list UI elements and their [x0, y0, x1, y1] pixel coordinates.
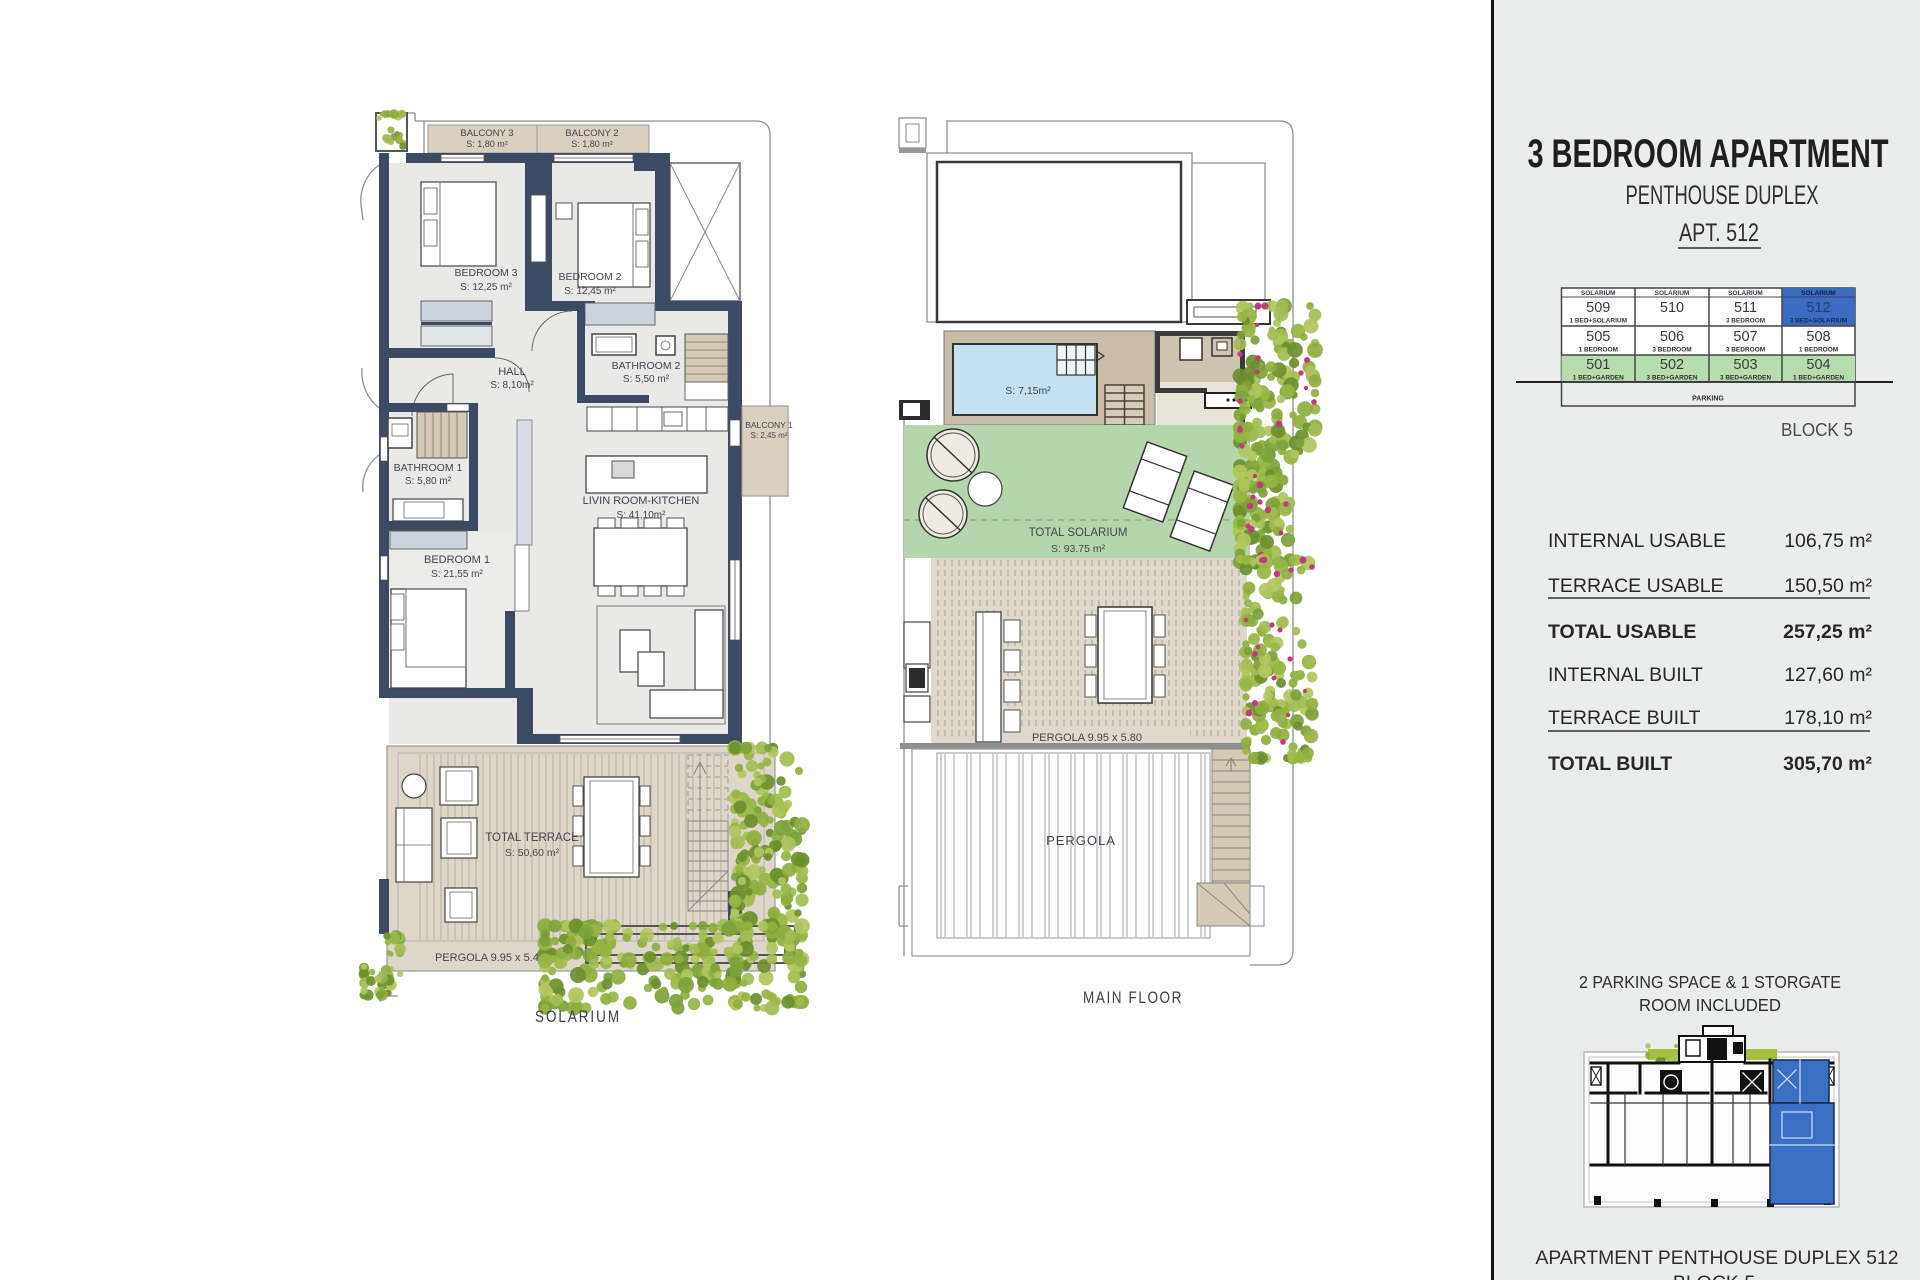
svg-text:3 BED+GARDEN: 3 BED+GARDEN [1646, 375, 1697, 382]
svg-text:PENTHOUSE DUPLEX: PENTHOUSE DUPLEX [1626, 180, 1819, 210]
svg-text:BEDROOM 3: BEDROOM 3 [454, 267, 517, 279]
svg-text:BLOCK 5: BLOCK 5 [1781, 420, 1853, 440]
svg-text:501: 501 [1586, 357, 1610, 373]
svg-text:503: 503 [1733, 357, 1757, 373]
svg-text:3 BEDROOM APARTMENT: 3 BEDROOM APARTMENT [1528, 132, 1889, 176]
svg-text:S: 5,50 m²: S: 5,50 m² [623, 374, 670, 385]
svg-text:INTERNAL USABLE: INTERNAL USABLE [1548, 530, 1726, 552]
svg-text:502: 502 [1660, 357, 1684, 373]
svg-text:3 BED+GARDEN: 3 BED+GARDEN [1720, 375, 1771, 382]
svg-text:S: 2,45 m²: S: 2,45 m² [751, 431, 788, 440]
svg-text:SOLARIUM: SOLARIUM [1728, 290, 1763, 297]
svg-text:TOTAL USABLE: TOTAL USABLE [1548, 621, 1696, 643]
svg-text:1 BED+GARDEN: 1 BED+GARDEN [1573, 375, 1624, 382]
svg-text:3 BEDROOM: 3 BEDROOM [1726, 318, 1765, 325]
svg-text:1 BEDROOM: 1 BEDROOM [1579, 347, 1618, 354]
svg-text:S: 1,80 m²: S: 1,80 m² [466, 139, 508, 149]
svg-text:SOLARIUM: SOLARIUM [1581, 290, 1616, 297]
svg-text:512: 512 [1806, 300, 1830, 316]
svg-text:HALL: HALL [498, 366, 526, 378]
svg-text:2 PARKING SPACE & 1 STORGATE: 2 PARKING SPACE & 1 STORGATE [1579, 972, 1841, 992]
svg-text:PERGOLA: PERGOLA [1046, 833, 1116, 848]
svg-text:S: 8,10m²: S: 8,10m² [490, 380, 534, 391]
svg-text:PERGOLA 9.95 x 5.80: PERGOLA 9.95 x 5.80 [1032, 732, 1142, 744]
svg-text:1 BEDROOM: 1 BEDROOM [1799, 347, 1838, 354]
svg-text:PERGOLA 9.95 x 5.45: PERGOLA 9.95 x 5.45 [435, 952, 545, 964]
svg-text:508: 508 [1806, 329, 1830, 345]
svg-text:SOLARIUM: SOLARIUM [535, 1007, 621, 1026]
svg-text:127,60 m²: 127,60 m² [1784, 664, 1872, 686]
svg-text:BALCONY 3: BALCONY 3 [460, 128, 513, 139]
svg-text:1 BED+GARDEN: 1 BED+GARDEN [1793, 375, 1844, 382]
svg-text:SOLARIUM: SOLARIUM [1655, 290, 1690, 297]
svg-text:106,75 m²: 106,75 m² [1784, 530, 1872, 552]
svg-text:BATHROOM 2: BATHROOM 2 [612, 360, 681, 372]
svg-text:S: 12,25 m²: S: 12,25 m² [460, 282, 512, 293]
svg-text:TOTAL BUILT: TOTAL BUILT [1548, 753, 1672, 775]
svg-text:BATHROOM 1: BATHROOM 1 [394, 462, 463, 474]
svg-text:178,10 m²: 178,10 m² [1784, 707, 1872, 729]
svg-text:305,70 m²: 305,70 m² [1783, 753, 1872, 775]
svg-text:MAIN FLOOR: MAIN FLOOR [1083, 988, 1183, 1007]
svg-text:507: 507 [1733, 329, 1757, 345]
svg-text:506: 506 [1660, 329, 1684, 345]
svg-text:S: 50,60 m²: S: 50,60 m² [505, 847, 560, 859]
svg-text:BLOCK 5: BLOCK 5 [1673, 1272, 1756, 1280]
svg-text:150,50 m²: 150,50 m² [1784, 575, 1872, 597]
svg-text:TERRACE BUILT: TERRACE BUILT [1548, 707, 1700, 729]
svg-text:BALCONY 1: BALCONY 1 [745, 420, 793, 430]
svg-text:257,25 m²: 257,25 m² [1783, 621, 1872, 643]
svg-text:1 BED+SOLARIUM: 1 BED+SOLARIUM [1569, 318, 1627, 325]
svg-text:S: 12,45 m²: S: 12,45 m² [564, 286, 616, 297]
svg-text:TOTAL TERRACE: TOTAL TERRACE [485, 832, 579, 844]
svg-text:509: 509 [1586, 300, 1610, 316]
svg-text:504: 504 [1806, 357, 1830, 373]
svg-text:INTERNAL BUILT: INTERNAL BUILT [1548, 664, 1703, 686]
svg-text:BEDROOM 2: BEDROOM 2 [558, 271, 621, 283]
svg-text:BALCONY 2: BALCONY 2 [565, 128, 618, 139]
svg-text:S: 5,80 m²: S: 5,80 m² [405, 476, 452, 487]
svg-text:TERRACE USABLE: TERRACE USABLE [1548, 575, 1724, 597]
svg-text:S: 1,80 m²: S: 1,80 m² [571, 139, 613, 149]
svg-text:511: 511 [1734, 300, 1757, 316]
svg-text:3 BED+SOLARIUM: 3 BED+SOLARIUM [1790, 318, 1848, 325]
svg-text:505: 505 [1586, 329, 1610, 345]
svg-text:LIVIN ROOM-KITCHEN: LIVIN ROOM-KITCHEN [583, 495, 700, 507]
svg-text:510: 510 [1660, 300, 1684, 316]
svg-text:3 BEDROOM: 3 BEDROOM [1652, 347, 1691, 354]
svg-text:PARKING: PARKING [1692, 396, 1724, 403]
svg-text:APT. 512: APT. 512 [1679, 219, 1759, 247]
svg-text:ROOM INCLUDED: ROOM INCLUDED [1639, 995, 1781, 1015]
svg-text:S: 93.75 m²: S: 93.75 m² [1051, 543, 1106, 555]
svg-text:S: 21,55 m²: S: 21,55 m² [431, 569, 483, 580]
svg-text:3 BEDROOM: 3 BEDROOM [1726, 347, 1765, 354]
svg-text:APARTMENT PENTHOUSE DUPLEX: APARTMENT PENTHOUSE DUPLEX 512 [1536, 1247, 1899, 1269]
svg-text:BEDROOM 1: BEDROOM 1 [424, 554, 490, 566]
svg-text:S: 7,15m²: S: 7,15m² [1005, 385, 1051, 397]
svg-text:SOLARIUM: SOLARIUM [1801, 290, 1836, 297]
svg-text:TOTAL SOLARIUM: TOTAL SOLARIUM [1029, 527, 1128, 539]
